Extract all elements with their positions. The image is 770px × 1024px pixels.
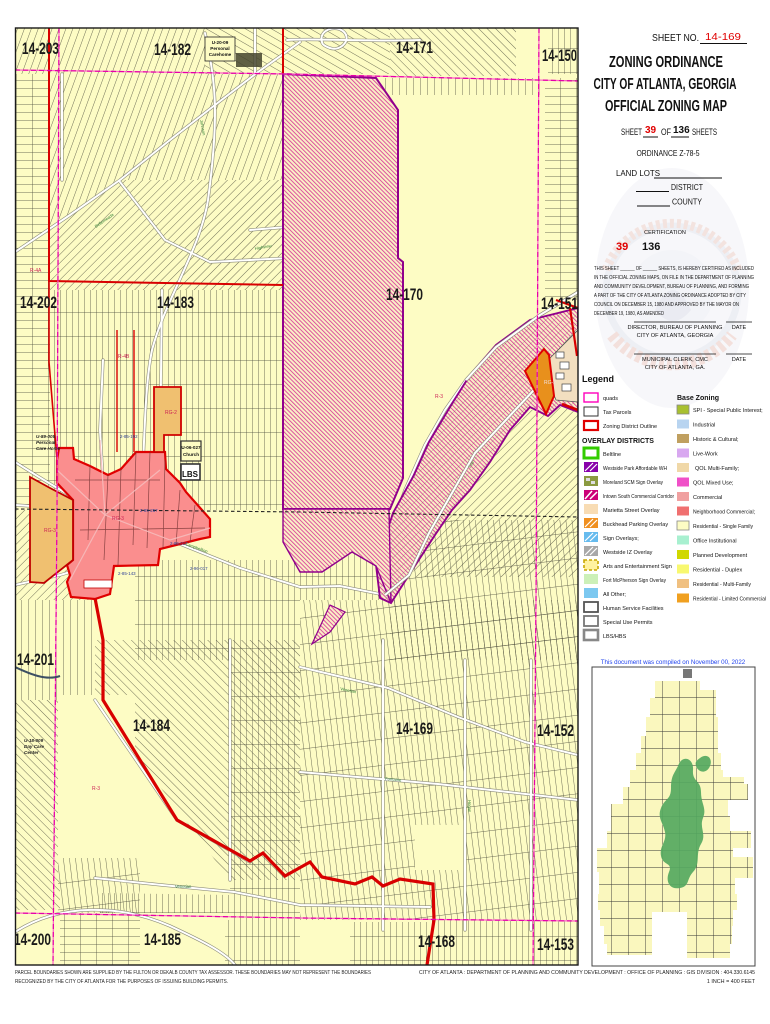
svg-text:Base Zoning: Base Zoning	[677, 395, 719, 402]
svg-text:Venetian: Venetian	[175, 884, 192, 889]
svg-text:LAND LOTS: LAND LOTS	[616, 168, 660, 178]
svg-text:R-4A: R-4A	[30, 268, 42, 274]
svg-text:14-150: 14-150	[542, 47, 577, 65]
svg-text:136: 136	[673, 125, 690, 136]
svg-text:136: 136	[642, 241, 660, 253]
svg-text:CITY OF ATLANTA, GEORGIA: CITY OF ATLANTA, GEORGIA	[594, 76, 737, 93]
svg-text:Personal: Personal	[36, 440, 56, 445]
svg-text:14-201: 14-201	[17, 651, 54, 669]
svg-text:U-06-027: U-06-027	[181, 445, 201, 450]
svg-text:14-171: 14-171	[396, 39, 433, 57]
svg-text:RECOGNIZED BY THE CITY OF ATLA: RECOGNIZED BY THE CITY OF ATLANTA FOR TH…	[15, 979, 228, 985]
svg-text:Westside Park Affordable WH: Westside Park Affordable WH	[603, 466, 667, 472]
svg-text:SHEET NO.: SHEET NO.	[652, 32, 699, 44]
svg-text:Residential - Duplex: Residential - Duplex	[693, 568, 742, 574]
svg-text:Center: Center	[24, 750, 39, 755]
svg-text:Sign Overlays;: Sign Overlays;	[603, 536, 639, 542]
svg-text:Care Home: Care Home	[36, 446, 61, 451]
svg-text:14-184: 14-184	[133, 717, 171, 735]
svg-text:RG-2: RG-2	[165, 410, 177, 416]
svg-text:SHEET: SHEET	[621, 127, 642, 137]
svg-text:U-18-009: U-18-009	[24, 738, 44, 743]
svg-text:Historic & Cultural;: Historic & Cultural;	[693, 437, 739, 443]
svg-text:OVERLAY DISTRICTS: OVERLAY DISTRICTS	[582, 438, 654, 445]
svg-text:Church: Church	[183, 452, 199, 457]
svg-text:LBS/HBS: LBS/HBS	[603, 634, 627, 640]
svg-text:39: 39	[616, 241, 628, 253]
svg-text:Beltline: Beltline	[603, 452, 621, 458]
svg-text:OF: OF	[661, 127, 671, 137]
svg-text:Residential - Single Family: Residential - Single Family	[693, 524, 753, 530]
svg-text:2-85-143: 2-85-143	[118, 571, 136, 576]
svg-text:14-151: 14-151	[541, 295, 578, 313]
svg-text:DATE: DATE	[732, 325, 747, 331]
svg-text:SPI - Special Public Interest;: SPI - Special Public Interest;	[693, 408, 763, 414]
svg-text:Residential - Limited Commerci: Residential - Limited Commercial	[693, 597, 766, 603]
svg-text:14-170: 14-170	[386, 286, 423, 304]
svg-text:Fort McPherson Sign Overlay: Fort McPherson Sign Overlay	[603, 578, 666, 584]
svg-text:All Other;: All Other;	[603, 592, 626, 598]
svg-text:R-3: R-3	[435, 394, 443, 400]
svg-text:Westside IZ Overlay: Westside IZ Overlay	[603, 550, 653, 556]
svg-text:14-152: 14-152	[537, 722, 574, 740]
svg-text:Neighborhood Commercial;: Neighborhood Commercial;	[693, 510, 755, 516]
svg-text:Arts and Entertainment Sign: Arts and Entertainment Sign	[603, 564, 672, 570]
svg-text:14-169: 14-169	[705, 31, 741, 43]
svg-text:14-203: 14-203	[22, 40, 59, 58]
svg-text:RG-3: RG-3	[44, 528, 56, 534]
svg-text:quads: quads	[603, 396, 618, 402]
svg-text:Day Care: Day Care	[24, 744, 44, 749]
svg-text:A PART OF THE CITY OF ATLANTA: A PART OF THE CITY OF ATLANTA ZONING ORD…	[594, 293, 746, 299]
svg-text:Human Service Facilities: Human Service Facilities	[603, 606, 664, 612]
svg-text:2-85-192: 2-85-192	[120, 434, 138, 439]
svg-text:MUNICIPAL CLERK, CMC: MUNICIPAL CLERK, CMC	[642, 357, 708, 363]
svg-text:Special Use Permits: Special Use Permits	[603, 620, 653, 626]
svg-text:CERTIFICATION: CERTIFICATION	[644, 230, 686, 236]
svg-text:14-185: 14-185	[144, 931, 181, 949]
svg-text:R-3: R-3	[92, 786, 100, 792]
svg-text:DECEMBER 19, 1980, AS AMENDED: DECEMBER 19, 1980, AS AMENDED	[594, 311, 664, 317]
svg-text:IN THE OFFICIAL ZONING MAPS, O: IN THE OFFICIAL ZONING MAPS, ON FILE IN …	[594, 275, 754, 281]
svg-text:DISTRICT: DISTRICT	[671, 182, 703, 192]
svg-text:14-183: 14-183	[157, 294, 194, 312]
svg-text:Carehome: Carehome	[209, 52, 232, 57]
svg-text:Intown South Commercial Corrid: Intown South Commercial Corridor	[603, 494, 674, 500]
svg-text:Moreland SCM Sign Overlay: Moreland SCM Sign Overlay	[603, 480, 663, 486]
svg-text:RG-3: RG-3	[112, 516, 124, 522]
svg-text:U-89-005: U-89-005	[36, 434, 56, 439]
svg-text:Zoning District Outline: Zoning District Outline	[603, 424, 657, 430]
svg-text:2-85-257: 2-85-257	[140, 508, 158, 513]
svg-text:OFFICIAL ZONING MAP: OFFICIAL ZONING MAP	[605, 98, 727, 115]
svg-text:DIRECTOR, BUREAU OF PLANNING: DIRECTOR, BUREAU OF PLANNING	[627, 325, 722, 331]
svg-text:Residential - Multi-Family: Residential - Multi-Family	[693, 582, 751, 588]
svg-text:Commercial: Commercial	[693, 495, 722, 501]
svg-text:Tax Parcels: Tax Parcels	[603, 410, 632, 416]
svg-text:14-182: 14-182	[154, 41, 191, 59]
svg-text:QOL Mixed Use;: QOL Mixed Use;	[693, 481, 734, 487]
svg-text:Personal: Personal	[210, 46, 229, 51]
svg-text:14-200: 14-200	[14, 931, 51, 949]
svg-text:Planned Development: Planned Development	[693, 553, 748, 559]
svg-text:2-86-017: 2-86-017	[170, 541, 188, 546]
svg-text:QOL Multi-Family;: QOL Multi-Family;	[695, 466, 740, 472]
svg-text:39: 39	[645, 125, 657, 136]
svg-text:DATE: DATE	[732, 357, 747, 363]
svg-text:Hogan: Hogan	[467, 800, 472, 813]
svg-text:ZONING ORDINANCE: ZONING ORDINANCE	[609, 54, 723, 71]
svg-text:COUNTY: COUNTY	[672, 197, 702, 207]
svg-text:CITY OF ATLANTA, GA.: CITY OF ATLANTA, GA.	[645, 365, 706, 371]
svg-text:COUNCIL ON DECEMBER 15, 1980 A: COUNCIL ON DECEMBER 15, 1980 AND APPROVE…	[594, 302, 739, 308]
svg-text:Industrial: Industrial	[693, 423, 715, 429]
svg-text:14-153: 14-153	[537, 936, 574, 954]
svg-text:RG-2: RG-2	[544, 380, 556, 386]
svg-text:AND COMMUNITY DEVELOPMENT, BUR: AND COMMUNITY DEVELOPMENT, BUREAU OF PLA…	[594, 284, 749, 290]
svg-text:Office Institutional: Office Institutional	[693, 539, 737, 545]
svg-text:Marietta Street Overlay: Marietta Street Overlay	[603, 508, 660, 514]
svg-text:14-202: 14-202	[20, 294, 57, 312]
svg-text:Buckhead Parking Overlay: Buckhead Parking Overlay	[603, 522, 668, 528]
svg-text:14-168: 14-168	[418, 933, 455, 951]
svg-text:LBS: LBS	[182, 470, 199, 479]
svg-text:R-4B: R-4B	[118, 354, 130, 360]
svg-text:2-96-017: 2-96-017	[190, 566, 208, 571]
svg-text:Live-Work: Live-Work	[693, 452, 718, 458]
svg-text:PARCEL BOUNDARIES SHOWN ARE SU: PARCEL BOUNDARIES SHOWN ARE SUPPLIED BY …	[15, 970, 371, 976]
svg-text:This document was compiled on: This document was compiled on November 0…	[601, 659, 746, 666]
svg-text:CITY OF ATLANTA, GEORGIA: CITY OF ATLANTA, GEORGIA	[637, 333, 714, 339]
svg-text:14-169: 14-169	[396, 720, 433, 738]
svg-text:SHEETS: SHEETS	[692, 127, 717, 137]
svg-text:ORDINANCE Z-78-5: ORDINANCE Z-78-5	[637, 148, 700, 158]
svg-text:Legend: Legend	[582, 374, 614, 384]
svg-text:THIS SHEET ______ OF ______ SH: THIS SHEET ______ OF ______ SHEETS, IS H…	[594, 266, 754, 272]
svg-text:1 INCH = 400 FEET: 1 INCH = 400 FEET	[707, 979, 756, 985]
svg-text:U-20-09: U-20-09	[212, 40, 229, 45]
svg-text:CITY OF ATLANTA : DEPARTMENT O: CITY OF ATLANTA : DEPARTMENT OF PLANNING…	[419, 970, 755, 976]
